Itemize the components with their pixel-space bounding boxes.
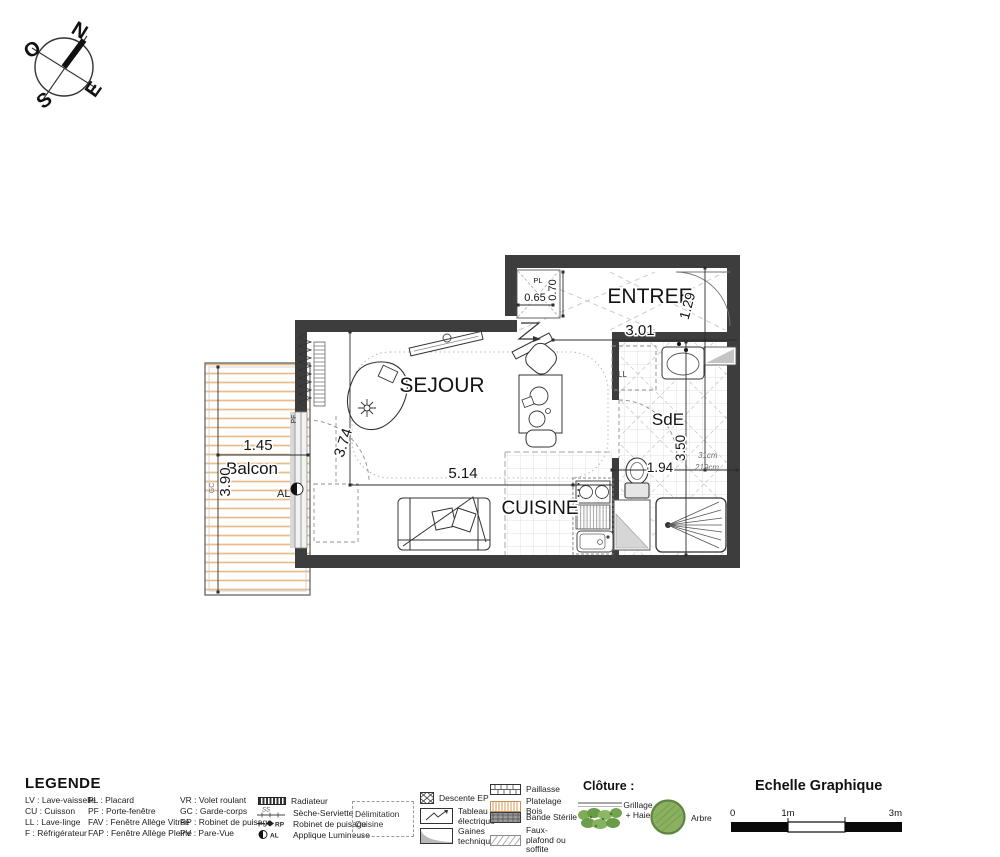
compass-rose: N O E S [20, 18, 107, 114]
fence-title: Clôture : [583, 779, 634, 793]
scale-title: Echelle Graphique [755, 778, 882, 794]
room-label-sejour: SEJOUR [399, 374, 484, 397]
floor-plan-page: { "compass": { "n": "N", "o": "O", "e": … [0, 0, 1000, 857]
legend-abbr: F : Réfrigérateur [25, 828, 96, 839]
soffit-width-note: 31cm [698, 451, 718, 460]
wall-light-legend-icon: AL [256, 829, 288, 840]
technical-duct-box [704, 347, 736, 365]
toilet [625, 458, 649, 498]
stove [576, 481, 610, 503]
legend-abbr: LL : Lave-linge [25, 817, 96, 828]
compass-south-label: S [33, 88, 57, 114]
legend-faux-plafond-row: Faux-plafond ou soffite [490, 826, 574, 855]
tap-icon: RP [256, 818, 288, 829]
floor-plan-drawing: N O E S [0, 0, 1000, 770]
washbasin [662, 342, 704, 379]
legend-abbr: LV : Lave-vaisselle [25, 795, 96, 806]
dim-balcon-depth: 3.90 [217, 467, 234, 496]
scale-tick-1m: 1m [781, 808, 794, 819]
electrical-panel-icon [420, 808, 453, 824]
legend-abbr-col2: PL : Placard PF : Porte-fenêtre FAV : Fe… [88, 795, 192, 839]
legend-abbr: PL : Placard [88, 795, 192, 806]
scale-tick-3m: 3m [889, 808, 902, 819]
false-ceiling-label: Faux-plafond ou soffite [526, 826, 574, 855]
sterile-strip-label: Bande Stérile [526, 813, 577, 823]
dim-pl-depth: 0.70 [547, 279, 559, 300]
balcony-window [295, 412, 307, 548]
legend-bande-row: Bande Stérile [490, 812, 577, 823]
dim-entree-width: 3.01 [625, 322, 654, 339]
technical-ducts-icon [420, 828, 453, 844]
dim-pl-width: 0.65 [524, 292, 545, 304]
towel-dryer-label: Sèche-Serviette [293, 808, 353, 818]
coffee-table [348, 362, 408, 430]
soffit-height-note: 219cm [694, 463, 719, 472]
dim-balcon-width: 1.45 [243, 437, 272, 454]
wall-light-key: AL [270, 833, 279, 840]
tree-icon [648, 797, 688, 837]
kitchen-counter [573, 478, 613, 554]
wall-light [291, 483, 303, 495]
downpipe-label: Descente EP [439, 793, 489, 803]
window-door-label: PF [291, 415, 298, 424]
dining-set [519, 340, 562, 447]
dim-sde-width: 1.94 [647, 460, 674, 475]
shower [656, 498, 726, 552]
legend-abbr: FAP : Fenêtre Allège Pleine [88, 828, 192, 839]
dim-sejour-width: 5.14 [448, 465, 477, 482]
scale-tick-0: 0 [730, 808, 735, 819]
legend-tap-row: RP Robinet de puisage [256, 818, 366, 829]
closet-label: PL [533, 276, 542, 285]
legend-descente-row: Descente EP [420, 792, 489, 804]
legend-abbr: CU : Cuisson [25, 806, 96, 817]
legend-paillasse-row: Paillasse [490, 784, 560, 795]
radiator-label: Radiateur [291, 796, 328, 806]
kitchen-drawers [576, 505, 610, 529]
hedge-fence-icon [578, 800, 622, 830]
downpipe-icon [420, 792, 434, 804]
compass-west-label: O [20, 36, 45, 63]
compass-north-label: N [68, 18, 92, 44]
wood-decking-swatch [490, 801, 521, 812]
washing-machine-label: LL [618, 370, 627, 379]
legend-title: LEGENDE [25, 775, 101, 792]
legend-radiator-row: Radiateur [258, 796, 328, 806]
dim-sde-depth: 3.50 [673, 435, 688, 461]
legend-abbr: PF : Porte-fenêtre [88, 806, 192, 817]
room-label-cuisine: CUISINE [501, 498, 578, 519]
room-label-sde: SdE [652, 410, 684, 429]
legend-abbr: FAV : Fenêtre Allège Vitrée [88, 817, 192, 828]
guardrail-label: GC [209, 483, 216, 494]
sterile-strip-swatch [490, 812, 521, 823]
towel-dryer-key: SS [262, 808, 270, 814]
sofa [398, 497, 490, 550]
utility-box [614, 500, 650, 550]
false-ceiling-swatch [490, 835, 521, 846]
dim-sejour-depth: 3.74 [331, 426, 356, 459]
tap-key: RP [275, 822, 285, 829]
tree-label: Arbre [691, 814, 712, 824]
radiator-icon [258, 797, 286, 805]
legend-abbr-col1: LV : Lave-vaisselle CU : Cuisson LL : La… [25, 795, 96, 839]
worktop-swatch [490, 784, 521, 795]
wall-light-label: AL [277, 488, 290, 500]
scale-bar: 0 1m 3m [728, 803, 910, 837]
worktop-label: Paillasse [526, 785, 560, 795]
kitchen-delimitation-legend: Délimitation Cuisine [352, 801, 414, 837]
wall-radiator [314, 342, 325, 406]
